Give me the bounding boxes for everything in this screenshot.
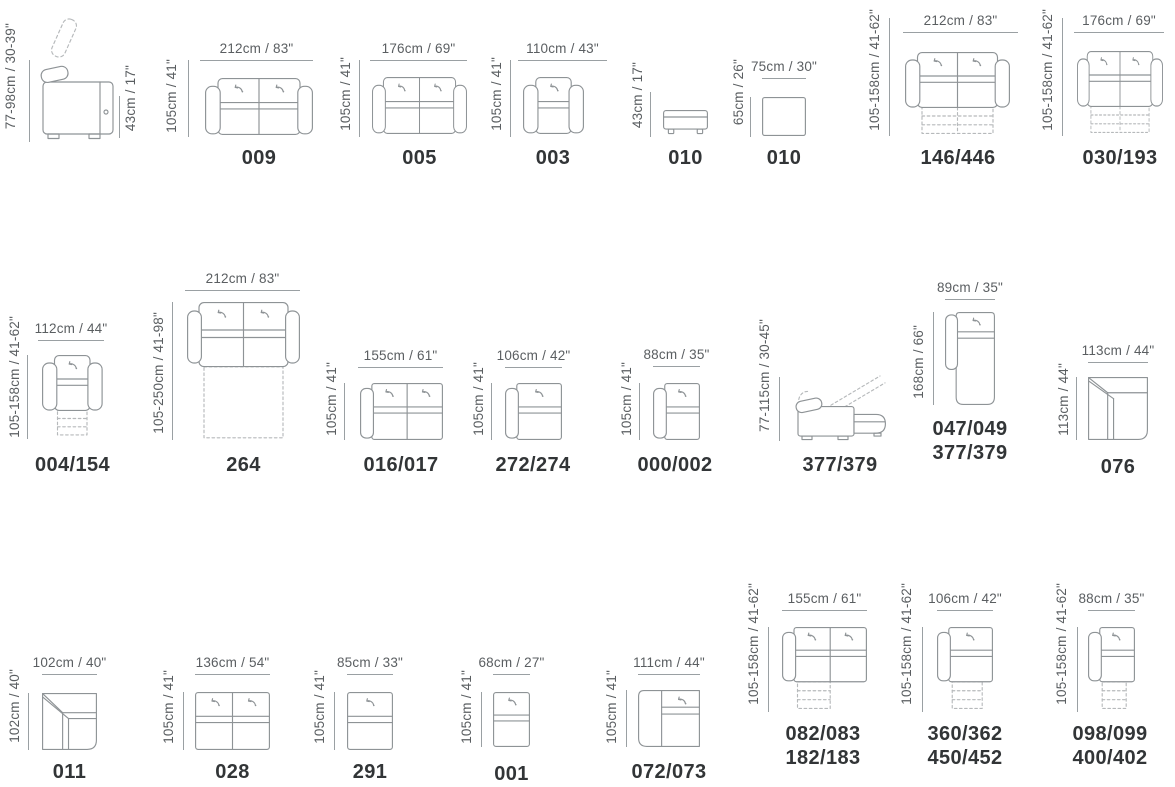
dimension-line bbox=[27, 355, 28, 439]
depth-dimension-label: 105cm / 41" bbox=[164, 59, 179, 133]
dimension-line bbox=[28, 693, 29, 750]
model-number: 009 bbox=[205, 147, 313, 170]
width-dimension: 176cm / 69" bbox=[370, 41, 467, 61]
model-number: 360/362 bbox=[915, 723, 1015, 746]
height-dimension: 77-115cm / 30-45" bbox=[755, 311, 773, 441]
depth-dimension-label: 105-158cm / 41-62" bbox=[746, 583, 761, 705]
ottoman-top-view-drawing bbox=[762, 97, 806, 136]
width-dimension: 106cm / 42" bbox=[937, 591, 993, 611]
depth-dimension-label: 105cm / 41" bbox=[604, 670, 619, 744]
dimension-line bbox=[370, 60, 467, 61]
dimension-line bbox=[1088, 610, 1135, 611]
width-dimension: 212cm / 83" bbox=[903, 13, 1018, 33]
recliner-side-view-drawing bbox=[792, 375, 888, 444]
depth-dimension-label: 105-158cm / 41-62" bbox=[867, 9, 882, 131]
width-dimension-label: 110cm / 43" bbox=[526, 41, 599, 56]
dimension-line bbox=[358, 367, 443, 368]
depth-dimension: 105cm / 41" bbox=[159, 664, 177, 750]
recliner-armchair-drawing bbox=[42, 355, 103, 439]
depth-dimension-label: 105cm / 41" bbox=[619, 362, 634, 436]
one-seat-armless-module-drawing bbox=[347, 692, 393, 750]
width-dimension-label: 212cm / 83" bbox=[924, 13, 998, 28]
width-dimension-label: 136cm / 54" bbox=[196, 655, 270, 670]
model-number: 264 bbox=[187, 454, 300, 477]
depth-dimension-label: 113cm / 44" bbox=[1056, 363, 1071, 436]
model-number: 016/017 bbox=[356, 454, 446, 477]
two-seat-sofa-drawing bbox=[372, 77, 467, 136]
one-seat-left-arm-module-drawing bbox=[653, 383, 700, 440]
width-dimension: 111cm / 44" bbox=[638, 655, 700, 675]
corner-module-drawing bbox=[1088, 377, 1148, 440]
dimension-line bbox=[518, 60, 607, 61]
width-dimension-label: 68cm / 27" bbox=[478, 655, 544, 670]
depth-dimension: 105-158cm / 41-62" bbox=[5, 308, 23, 445]
depth-dimension-label: 168cm / 66" bbox=[911, 325, 926, 399]
model-number: 003 bbox=[505, 147, 601, 170]
dimension-line bbox=[200, 60, 313, 61]
dimension-line bbox=[903, 32, 1018, 33]
one-seat-left-arm-recliner-drawing bbox=[1088, 627, 1135, 712]
two-seat-recliner-sofa-drawing bbox=[1077, 51, 1163, 135]
width-dimension: 112cm / 44" bbox=[38, 321, 104, 341]
depth-dimension: 105cm / 41" bbox=[322, 357, 340, 440]
depth-dimension: 105-158cm / 41-62" bbox=[744, 576, 762, 712]
width-dimension-label: 176cm / 69" bbox=[382, 41, 456, 56]
depth-dimension: 105-158cm / 41-62" bbox=[1038, 0, 1056, 140]
dimension-line bbox=[195, 674, 270, 675]
depth-dimension-label: 105cm / 41" bbox=[312, 670, 327, 744]
dimension-line bbox=[626, 690, 627, 747]
dimension-line bbox=[937, 610, 993, 611]
dimension-line bbox=[1062, 18, 1063, 136]
width-dimension: 176cm / 69" bbox=[1074, 13, 1164, 33]
dimension-line bbox=[782, 610, 867, 611]
model-number: 146/446 bbox=[903, 147, 1013, 170]
depth-dimension: 105cm / 41" bbox=[469, 357, 487, 440]
dimension-line bbox=[1074, 32, 1164, 33]
width-dimension-label: 155cm / 61" bbox=[788, 591, 862, 606]
depth-dimension-label: 105-250cm / 41-98" bbox=[151, 312, 166, 434]
depth-dimension: 65cm / 26" bbox=[729, 52, 747, 132]
dimension-line bbox=[638, 674, 700, 675]
depth-dimension-label: 105cm / 41" bbox=[489, 57, 504, 131]
model-number: 076 bbox=[1088, 456, 1148, 479]
depth-dimension: 113cm / 44" bbox=[1054, 361, 1072, 438]
dimension-line bbox=[639, 383, 640, 440]
width-dimension: 110cm / 43" bbox=[518, 41, 607, 61]
sofa-bed-drawing bbox=[187, 302, 300, 440]
dimension-line bbox=[653, 366, 700, 367]
depth-dimension-label: 105cm / 41" bbox=[324, 362, 339, 436]
depth-dimension-label: 102cm / 40" bbox=[7, 669, 22, 743]
width-dimension-label: 112cm / 44" bbox=[35, 321, 108, 336]
depth-dimension: 168cm / 66" bbox=[909, 315, 927, 408]
dimension-line bbox=[188, 60, 189, 137]
model-number-line2: 182/183 bbox=[773, 747, 873, 770]
dimension-line bbox=[172, 302, 173, 440]
sofa-side-view-drawing bbox=[40, 16, 118, 139]
model-number: 082/083 bbox=[773, 723, 873, 746]
dimension-line bbox=[510, 60, 511, 137]
width-dimension: 155cm / 61" bbox=[358, 348, 443, 368]
width-dimension: 75cm / 30" bbox=[762, 59, 806, 79]
ottoman-side-view-drawing bbox=[663, 110, 708, 137]
width-dimension-label: 85cm / 33" bbox=[337, 655, 403, 670]
depth-dimension: 105cm / 41" bbox=[617, 357, 635, 440]
dimension-line bbox=[347, 674, 393, 675]
dimension-line bbox=[889, 18, 890, 136]
dimension-line bbox=[185, 290, 300, 291]
depth-dimension-label: 105-158cm / 41-62" bbox=[7, 316, 22, 438]
dimension-line bbox=[505, 367, 562, 368]
two-seat-armless-module-drawing bbox=[195, 692, 270, 750]
depth-dimension: 105cm / 41" bbox=[602, 666, 620, 747]
dimension-line bbox=[493, 674, 530, 675]
width-dimension-label: 88cm / 35" bbox=[1078, 591, 1144, 606]
two-seat-left-arm-module-drawing bbox=[360, 383, 443, 440]
dimension-line bbox=[29, 60, 30, 142]
model-number: 291 bbox=[347, 761, 393, 784]
dimension-line bbox=[183, 692, 184, 750]
width-dimension-label: 155cm / 61" bbox=[364, 348, 438, 363]
width-dimension-label: 89cm / 35" bbox=[937, 280, 1003, 295]
seat-height-dimension: 43cm / 17" bbox=[121, 58, 139, 138]
dimension-line bbox=[650, 92, 651, 137]
model-number: 001 bbox=[493, 763, 530, 786]
model-number: 030/193 bbox=[1071, 147, 1169, 170]
width-dimension: 212cm / 83" bbox=[200, 41, 313, 61]
dimension-line bbox=[768, 627, 769, 712]
width-dimension: 85cm / 33" bbox=[347, 655, 393, 675]
dimension-line bbox=[334, 692, 335, 750]
width-dimension: 89cm / 35" bbox=[945, 280, 995, 300]
chaise-module-drawing bbox=[945, 312, 995, 405]
depth-dimension: 105-158cm / 41-62" bbox=[1052, 576, 1070, 712]
one-seat-left-arm-recliner-drawing bbox=[937, 627, 993, 712]
width-dimension: 106cm / 42" bbox=[505, 348, 562, 368]
model-number: 011 bbox=[42, 761, 97, 784]
model-number: 000/002 bbox=[630, 454, 720, 477]
width-dimension: 113cm / 44" bbox=[1088, 343, 1148, 363]
model-number: 272/274 bbox=[488, 454, 578, 477]
armchair-drawing bbox=[523, 77, 584, 136]
dimension-line bbox=[779, 377, 780, 441]
depth-dimension-label: 105cm / 41" bbox=[471, 362, 486, 436]
dimension-line bbox=[945, 299, 995, 300]
height-dimension-label: 77-98cm / 30-39" bbox=[3, 23, 18, 129]
width-dimension: 155cm / 61" bbox=[782, 591, 867, 611]
dimension-line bbox=[481, 692, 482, 747]
corner-terminal-module-drawing bbox=[638, 690, 700, 747]
dimension-line bbox=[922, 627, 923, 712]
model-number: 072/073 bbox=[618, 761, 720, 784]
model-number: 377/379 bbox=[795, 454, 885, 477]
depth-dimension-label: 65cm / 26" bbox=[731, 59, 746, 125]
model-number: 010 bbox=[663, 147, 708, 170]
depth-dimension: 105cm / 41" bbox=[487, 51, 505, 136]
model-number: 004/154 bbox=[25, 454, 120, 477]
height-dimension: 77-98cm / 30-39" bbox=[1, 10, 19, 142]
depth-dimension: 102cm / 40" bbox=[5, 661, 23, 751]
diagram-canvas: 77-98cm / 30-39" 43cm / 17" 212cm / 83" … bbox=[0, 0, 1175, 787]
dimension-line bbox=[1077, 627, 1078, 712]
dimension-line bbox=[42, 674, 97, 675]
model-number-line2: 377/379 bbox=[920, 442, 1020, 465]
dimension-line bbox=[1088, 362, 1148, 363]
dimension-line bbox=[491, 383, 492, 440]
width-dimension: 212cm / 83" bbox=[185, 271, 300, 291]
model-number-line2: 400/402 bbox=[1060, 747, 1160, 770]
corner-module-drawing bbox=[42, 693, 97, 750]
height-dimension-label: 43cm / 17" bbox=[630, 62, 645, 128]
model-number: 010 bbox=[762, 147, 806, 170]
dimension-line bbox=[1076, 377, 1077, 440]
depth-dimension: 105cm / 41" bbox=[162, 51, 180, 141]
depth-dimension-label: 105cm / 41" bbox=[338, 57, 353, 131]
dimension-line bbox=[119, 96, 120, 138]
width-dimension-label: 176cm / 69" bbox=[1082, 13, 1156, 28]
dimension-line bbox=[344, 383, 345, 440]
dimension-line bbox=[359, 60, 360, 137]
depth-dimension-label: 105-158cm / 41-62" bbox=[1054, 583, 1069, 705]
depth-dimension: 105-250cm / 41-98" bbox=[149, 300, 167, 445]
depth-dimension: 105cm / 41" bbox=[310, 664, 328, 750]
width-dimension-label: 113cm / 44" bbox=[1082, 343, 1155, 358]
depth-dimension: 105-158cm / 41-62" bbox=[865, 0, 883, 140]
model-number-line2: 450/452 bbox=[915, 747, 1015, 770]
width-dimension: 136cm / 54" bbox=[195, 655, 270, 675]
depth-dimension: 105-158cm / 41-62" bbox=[897, 576, 915, 712]
width-dimension: 68cm / 27" bbox=[493, 655, 530, 675]
two-seat-recliner-sofa-drawing bbox=[905, 52, 1010, 136]
width-dimension-label: 106cm / 42" bbox=[497, 348, 571, 363]
dimension-line bbox=[933, 312, 934, 405]
two-seat-sofa-drawing bbox=[205, 78, 313, 137]
dimension-line bbox=[38, 340, 104, 341]
width-dimension-label: 75cm / 30" bbox=[751, 59, 817, 74]
depth-dimension-label: 105cm / 41" bbox=[459, 670, 474, 744]
depth-dimension-label: 105-158cm / 41-62" bbox=[1040, 9, 1055, 131]
model-number: 005 bbox=[372, 147, 467, 170]
seat-height-dimension-label: 43cm / 17" bbox=[123, 65, 138, 131]
width-dimension-label: 88cm / 35" bbox=[643, 347, 709, 362]
model-number: 098/099 bbox=[1060, 723, 1160, 746]
one-seat-left-arm-module-drawing bbox=[505, 383, 562, 440]
depth-dimension-label: 105-158cm / 41-62" bbox=[899, 583, 914, 705]
model-number: 028 bbox=[195, 761, 270, 784]
two-seat-left-arm-recliner-drawing bbox=[782, 627, 867, 712]
height-dimension: 43cm / 17" bbox=[628, 58, 646, 133]
width-dimension-label: 106cm / 42" bbox=[928, 591, 1002, 606]
width-dimension-label: 102cm / 40" bbox=[33, 655, 107, 670]
width-dimension-label: 212cm / 83" bbox=[220, 41, 294, 56]
width-dimension: 88cm / 35" bbox=[1088, 591, 1135, 611]
width-dimension: 102cm / 40" bbox=[42, 655, 97, 675]
model-number: 047/049 bbox=[920, 418, 1020, 441]
width-dimension-label: 111cm / 44" bbox=[633, 655, 705, 670]
one-seat-armless-module-drawing bbox=[493, 692, 530, 747]
depth-dimension: 105cm / 41" bbox=[457, 666, 475, 747]
depth-dimension: 105cm / 41" bbox=[336, 51, 354, 136]
depth-dimension-label: 105cm / 41" bbox=[161, 670, 176, 744]
dimension-line bbox=[762, 78, 806, 79]
height-dimension-label: 77-115cm / 30-45" bbox=[757, 319, 772, 432]
width-dimension-label: 212cm / 83" bbox=[206, 271, 280, 286]
dimension-line bbox=[750, 97, 751, 137]
width-dimension: 88cm / 35" bbox=[653, 347, 700, 367]
